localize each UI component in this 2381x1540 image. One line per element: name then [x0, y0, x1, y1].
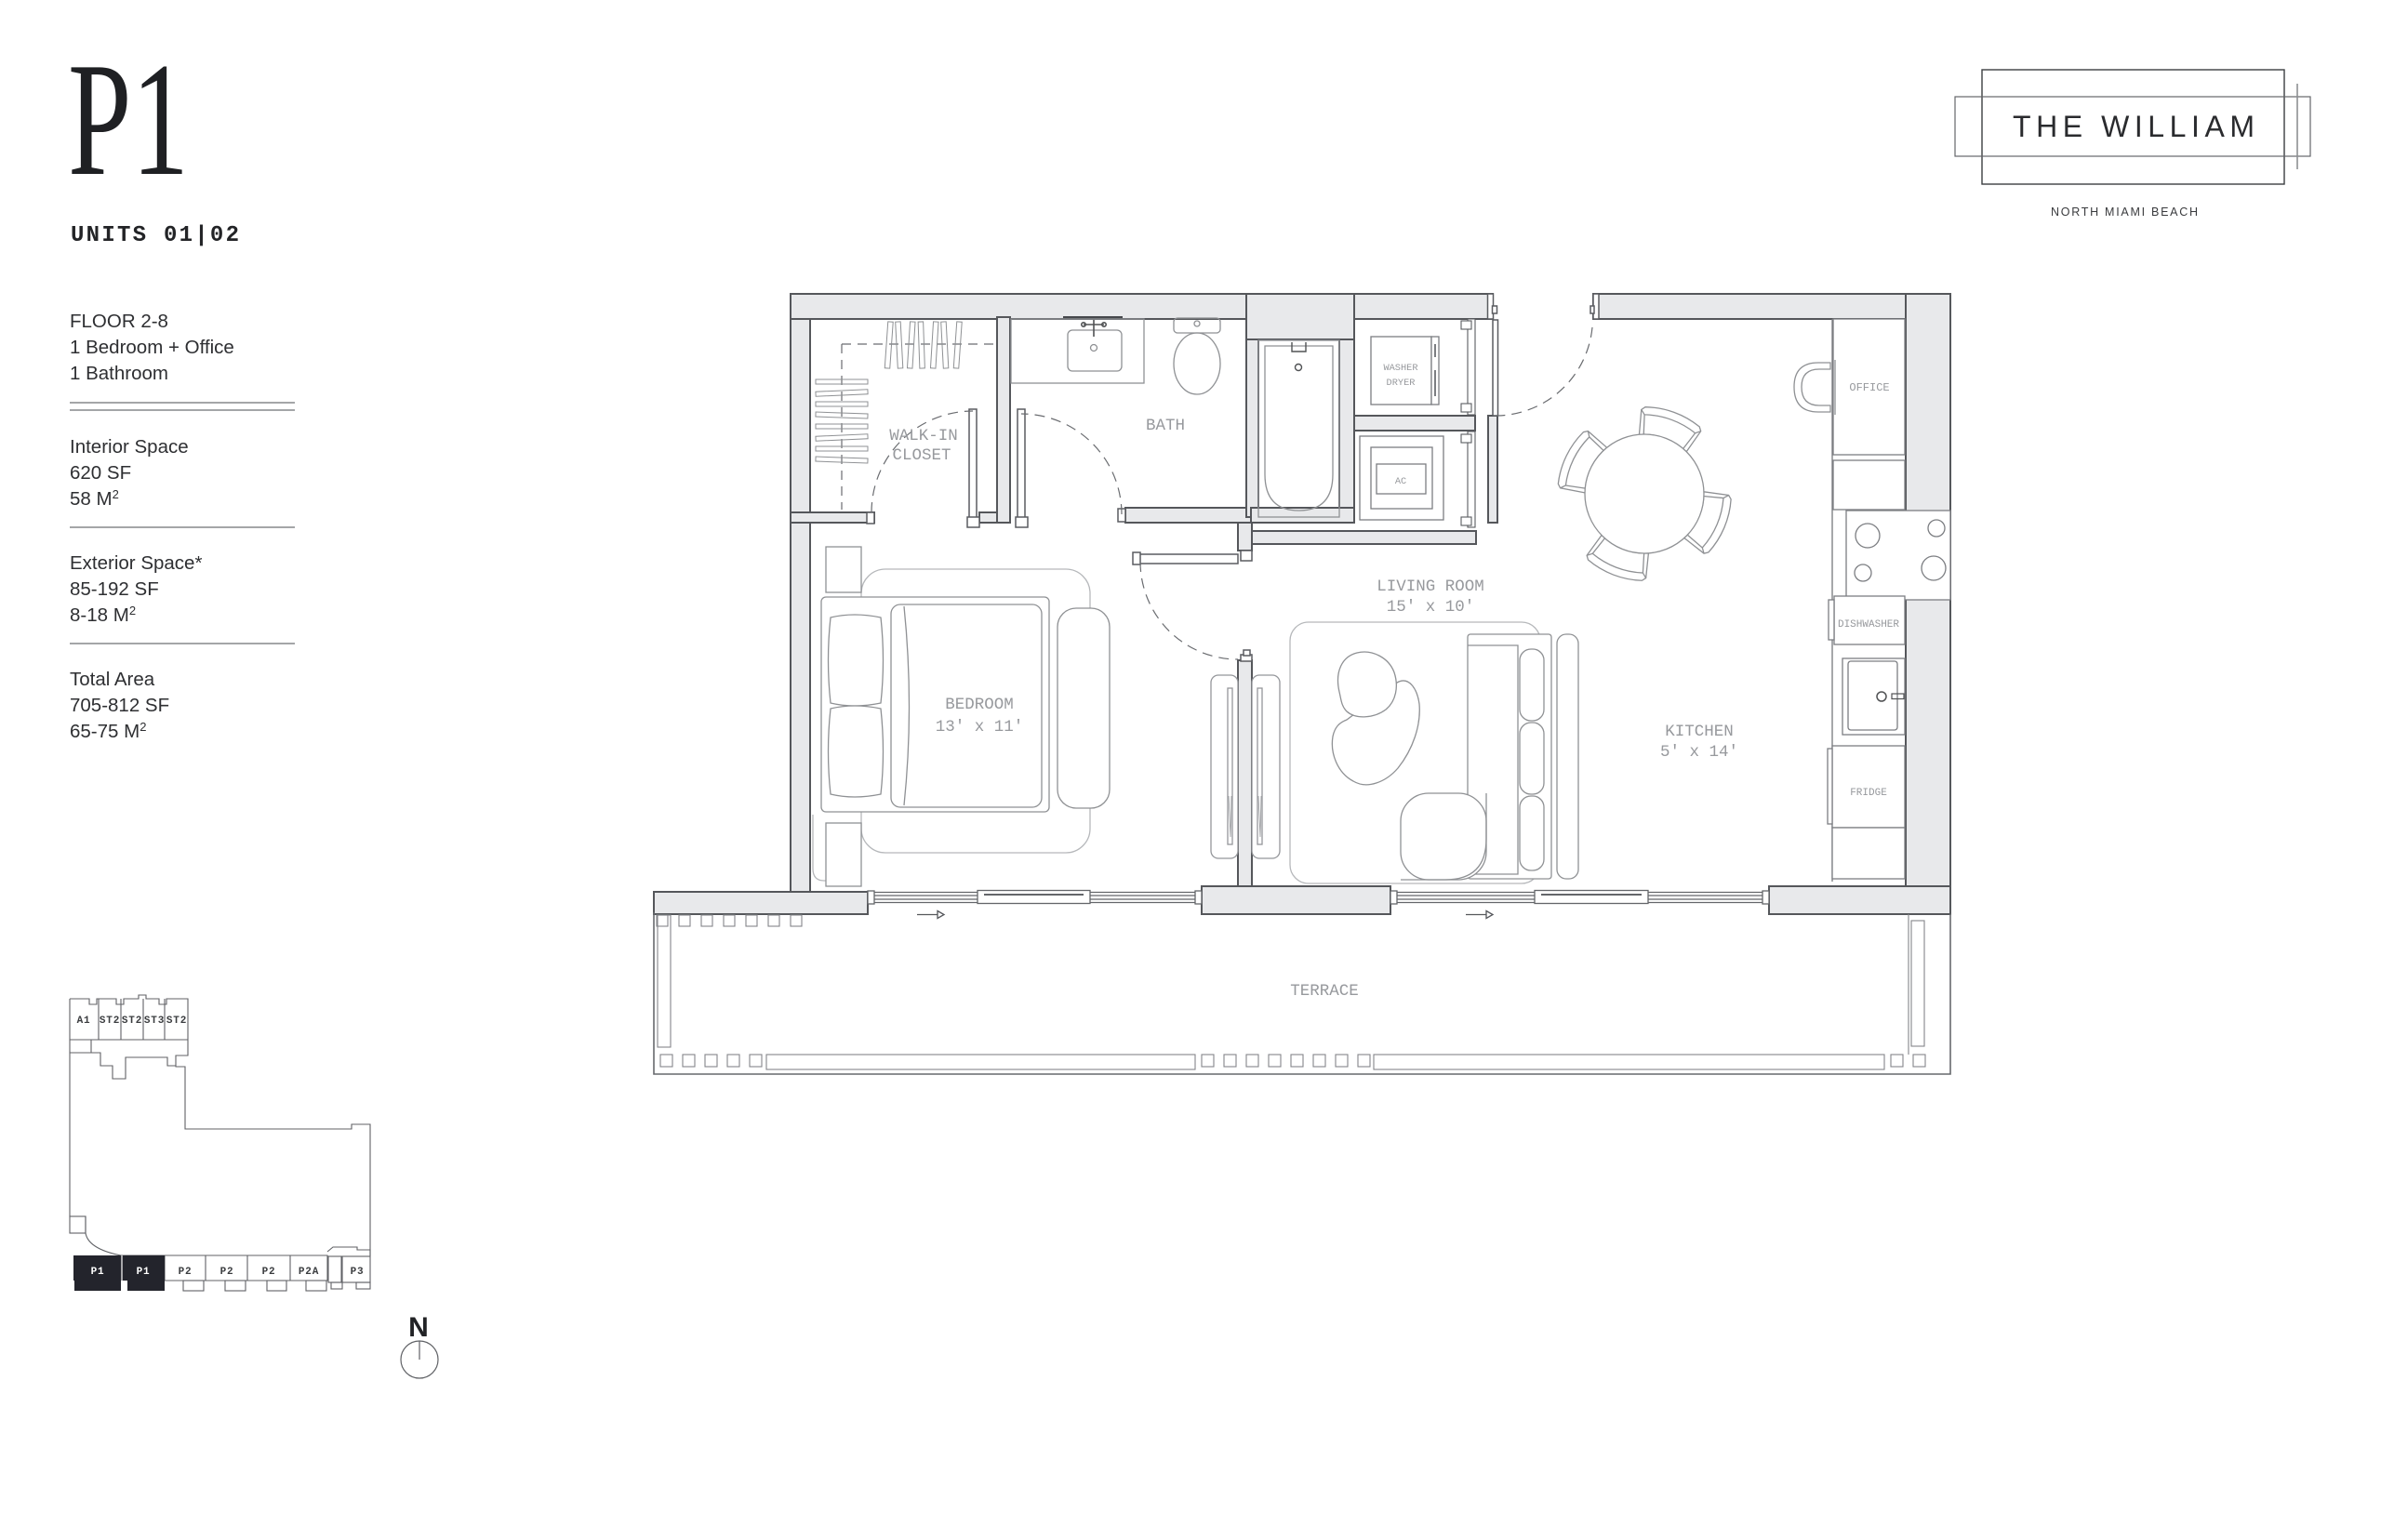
- svg-text:P2: P2: [220, 1267, 234, 1278]
- svg-text:P1: P1: [91, 1267, 105, 1278]
- svg-text:DISHWASHER: DISHWASHER: [1838, 619, 1899, 631]
- svg-text:AC: AC: [1395, 476, 1406, 487]
- svg-text:P2: P2: [179, 1267, 193, 1278]
- svg-text:ST2: ST2: [122, 1016, 142, 1027]
- svg-text:NORTH MIAMI BEACH: NORTH MIAMI BEACH: [2051, 206, 2198, 219]
- svg-text:A1: A1: [77, 1016, 91, 1027]
- svg-text:Exterior Space*: Exterior Space*: [70, 552, 202, 574]
- svg-text:FRIDGE: FRIDGE: [1850, 788, 1887, 799]
- svg-text:15' x 10': 15' x 10': [1387, 598, 1475, 617]
- svg-text:8-18 M2: 8-18 M2: [70, 604, 136, 626]
- svg-text:BEDROOM: BEDROOM: [945, 696, 1014, 714]
- svg-text:P1: P1: [68, 29, 189, 209]
- svg-text:13' x 11': 13' x 11': [936, 718, 1024, 737]
- svg-text:1 Bedroom + Office: 1 Bedroom + Office: [70, 337, 234, 358]
- svg-text:FLOOR 2-8: FLOOR 2-8: [70, 311, 168, 332]
- svg-text:85-192 SF: 85-192 SF: [70, 578, 159, 600]
- svg-text:N: N: [408, 1312, 429, 1343]
- svg-text:ST2: ST2: [100, 1016, 120, 1027]
- svg-text:P2A: P2A: [299, 1267, 319, 1278]
- svg-text:ST3: ST3: [144, 1016, 165, 1027]
- svg-text:DRYER: DRYER: [1387, 378, 1416, 389]
- svg-text:705-812 SF: 705-812 SF: [70, 695, 169, 716]
- svg-text:THE WILLIAM: THE WILLIAM: [2013, 110, 2255, 143]
- svg-text:P3: P3: [351, 1267, 365, 1278]
- svg-text:WALK-IN: WALK-IN: [889, 427, 958, 445]
- svg-text:BATH: BATH: [1146, 417, 1185, 435]
- svg-text:Interior Space: Interior Space: [70, 436, 189, 458]
- svg-text:P1: P1: [137, 1267, 151, 1278]
- svg-text:UNITS 01|02: UNITS 01|02: [71, 223, 239, 248]
- svg-text:KITCHEN: KITCHEN: [1665, 723, 1734, 741]
- svg-text:TERRACE: TERRACE: [1290, 982, 1359, 1001]
- svg-text:CLOSET: CLOSET: [892, 446, 951, 465]
- svg-text:OFFICE: OFFICE: [1849, 381, 1889, 394]
- svg-text:Total Area: Total Area: [70, 669, 155, 690]
- svg-text:WASHER: WASHER: [1383, 363, 1417, 374]
- svg-text:620 SF: 620 SF: [70, 462, 131, 484]
- svg-text:58 M2: 58 M2: [70, 487, 119, 510]
- svg-text:1 Bathroom: 1 Bathroom: [70, 363, 168, 384]
- svg-text:ST2: ST2: [166, 1016, 187, 1027]
- svg-text:LIVING ROOM: LIVING ROOM: [1377, 577, 1484, 596]
- svg-text:5' x 14': 5' x 14': [1660, 743, 1738, 762]
- svg-text:65-75 M2: 65-75 M2: [70, 720, 146, 742]
- svg-text:P2: P2: [262, 1267, 276, 1278]
